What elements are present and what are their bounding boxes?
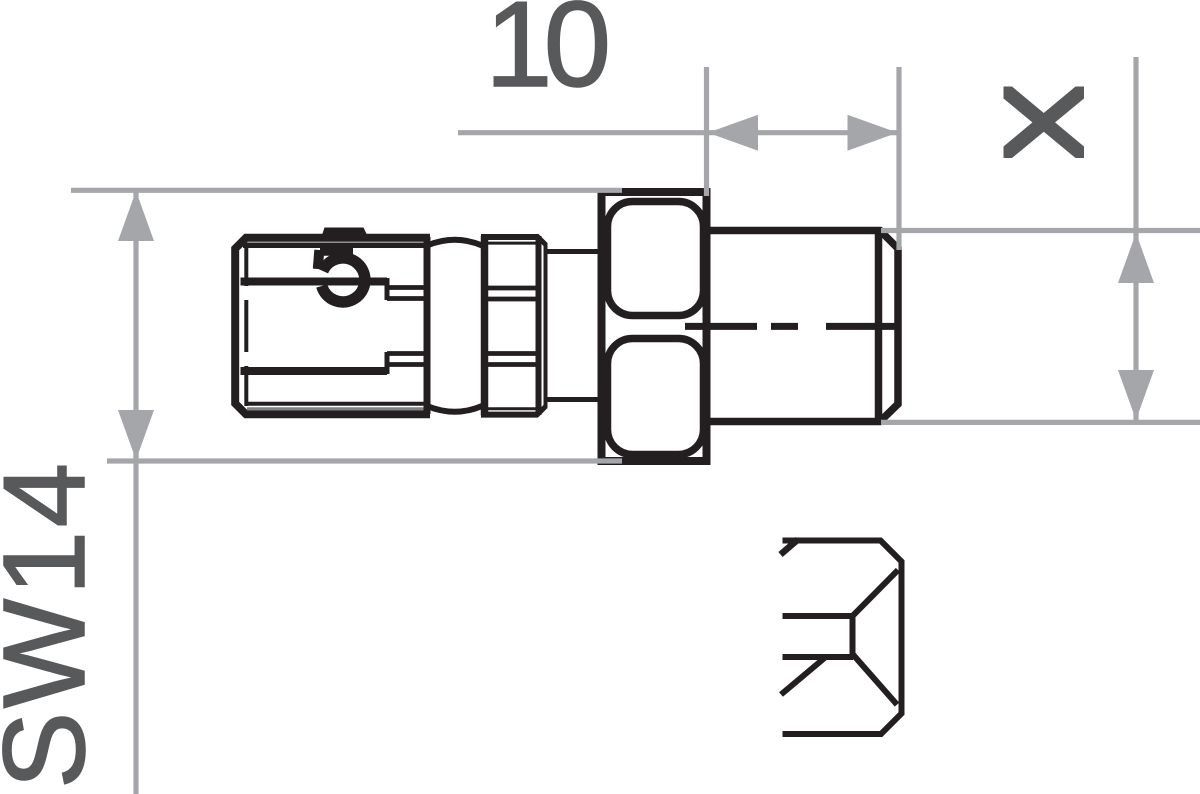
svg-text:10: 10 — [485, 0, 607, 112]
svg-text:SW14: SW14 — [0, 460, 109, 790]
